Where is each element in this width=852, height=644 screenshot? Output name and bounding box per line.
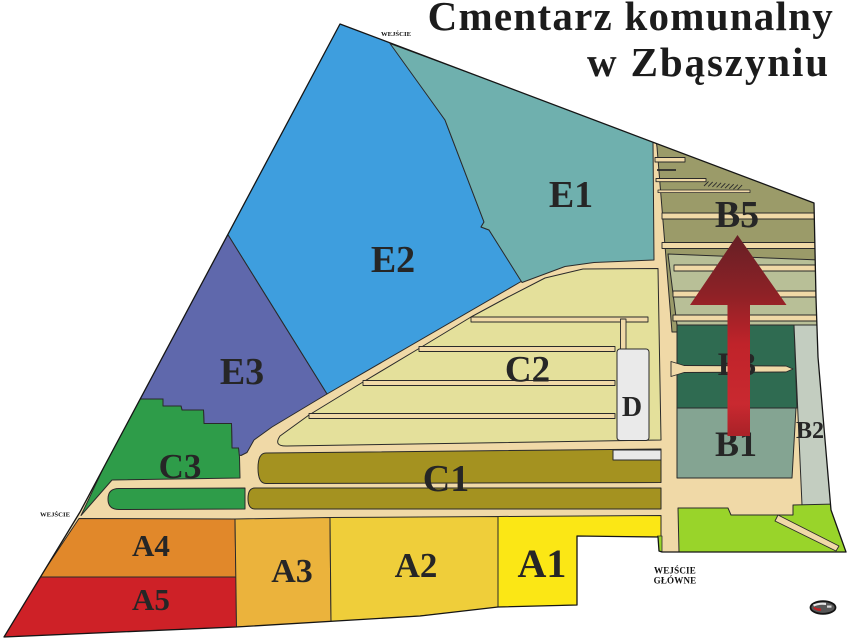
svg-text:E3: E3: [220, 351, 264, 393]
svg-text:A5: A5: [132, 582, 170, 617]
svg-text:C2: C2: [505, 350, 550, 391]
svg-text:C3: C3: [159, 447, 202, 486]
svg-text:B2: B2: [796, 418, 824, 444]
svg-text:A1: A1: [518, 541, 567, 586]
svg-text:B5: B5: [715, 194, 759, 236]
svg-text:A2: A2: [395, 546, 438, 585]
svg-text:WEJŚCIE: WEJŚCIE: [40, 511, 71, 519]
svg-text:A3: A3: [271, 553, 313, 590]
svg-text:Cmentarz komunalny: Cmentarz komunalny: [428, 0, 834, 39]
svg-text:A4: A4: [132, 528, 170, 563]
svg-text:w Zbąszyniu: w Zbąszyniu: [587, 39, 830, 85]
svg-text:D: D: [622, 392, 642, 423]
svg-text:WEJŚCIE: WEJŚCIE: [654, 566, 696, 576]
svg-text:C1: C1: [423, 458, 469, 500]
svg-text:GŁÓWNE: GŁÓWNE: [654, 576, 697, 586]
svg-text:E1: E1: [549, 174, 593, 216]
svg-text:WEJŚCIE: WEJŚCIE: [381, 30, 412, 38]
svg-text:E2: E2: [371, 239, 415, 281]
